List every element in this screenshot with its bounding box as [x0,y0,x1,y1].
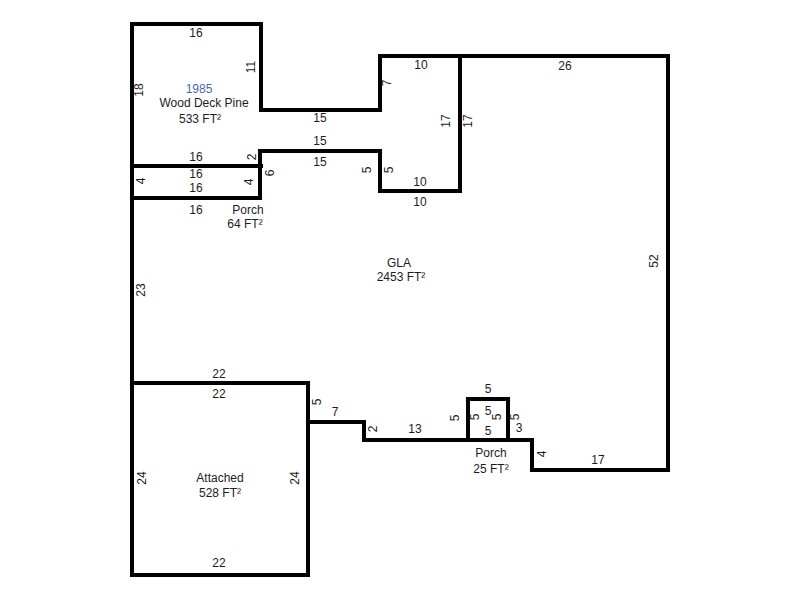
wall-segment [306,420,366,424]
dimension-label: 24 [289,471,301,484]
wall-segment [378,189,462,193]
dimension-label: 4 [536,451,548,458]
dimension-label: 16 [189,168,202,180]
deck-area-label: 533 FT² [179,113,221,125]
dimension-label: 26 [558,60,571,72]
dimension-label: 17 [462,114,474,127]
dimension-label: 2 [246,154,258,161]
dimension-label: 5 [449,415,461,422]
dimension-label: 16 [189,27,202,39]
deck-name-label: Wood Deck Pine [159,97,248,109]
dimension-label: 5 [509,414,521,421]
dimension-label: 16 [189,204,202,216]
dimension-label: 15 [313,135,326,147]
sketch-canvas: 161026117198518Wood Deck Pine15533 FT²17… [0,0,800,600]
dimension-label: 22 [212,368,225,380]
dimension-label: 10 [413,176,426,188]
porch64-name-label: Porch [232,204,263,216]
wall-segment [666,54,670,472]
dimension-label: 5 [361,167,373,174]
dimension-label: 13 [408,423,421,435]
dimension-label: 10 [413,196,426,208]
dimension-label: 7 [332,406,339,418]
dimension-label: 7 [381,80,393,87]
porch25-name-label: Porch [475,447,506,459]
dimension-label: 2 [367,426,379,433]
porch25-area-label: 25 FT² [473,463,508,475]
wall-segment [466,397,510,401]
wall-segment [130,573,310,577]
dimension-label: 22 [212,388,225,400]
dimension-label: 10 [414,59,427,71]
dimension-label: 24 [136,471,148,484]
wall-segment [259,22,263,112]
dimension-label: 23 [135,283,147,296]
dimension-label: 16 [189,151,202,163]
wall-segment [130,196,262,200]
dimension-label: 15 [313,112,326,124]
dimension-label: 18 [133,83,145,96]
gla-name-label: GLA [387,257,411,269]
dimension-label: 5 [491,414,503,421]
attached-name-label: Attached [196,472,243,484]
attached-area-label: 528 FT² [199,487,241,499]
gla-area-label: 2453 FT² [377,271,426,283]
deck-year-label: 1985 [186,83,213,95]
dimension-label: 17 [591,454,604,466]
dimension-label: 5 [311,399,323,406]
wall-segment [530,438,534,472]
dimension-label: 4 [243,179,255,186]
dimension-label: 15 [313,156,326,168]
dimension-label: 16 [189,182,202,194]
dimension-label: 4 [135,178,147,185]
dimension-label: 5 [485,383,492,395]
wall-segment [130,381,310,385]
dimension-label: 52 [648,254,660,267]
dimension-label: 17 [440,114,452,127]
dimension-label: 3 [516,422,523,434]
dimension-label: 5 [485,425,492,437]
wall-segment [258,149,382,153]
dimension-label: 6 [264,170,276,177]
dimension-label: 11 [245,61,257,73]
porch64-area-label: 64 FT² [227,218,262,230]
dimension-label: 22 [212,557,225,569]
wall-segment [130,22,134,577]
wall-segment [530,468,670,472]
dimension-label: 5 [383,167,395,174]
dimension-label: 5 [469,414,481,421]
wall-segment [306,381,310,577]
